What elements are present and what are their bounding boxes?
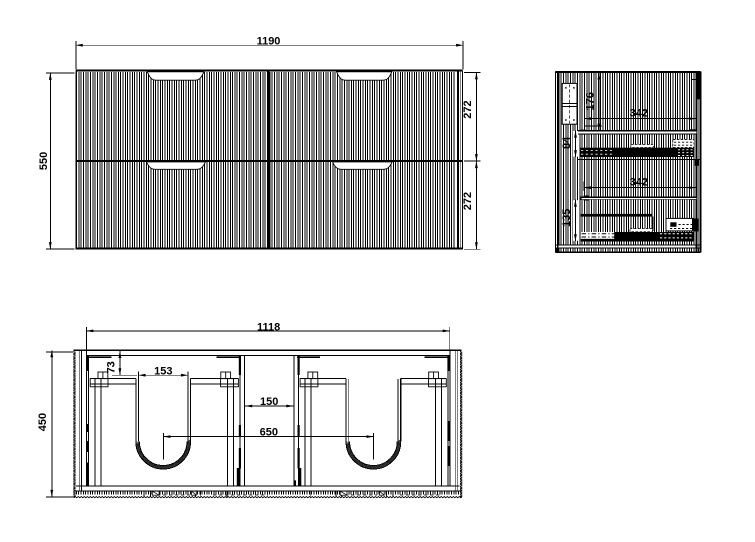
svg-text:650: 650: [260, 427, 278, 439]
svg-text:135: 135: [561, 209, 573, 227]
svg-text:550: 550: [38, 152, 50, 170]
svg-text:1118: 1118: [257, 321, 280, 333]
svg-text:150: 150: [260, 396, 278, 408]
svg-text:84: 84: [561, 136, 573, 149]
svg-text:342: 342: [630, 107, 648, 119]
svg-text:1190: 1190: [257, 35, 281, 47]
svg-text:450: 450: [37, 413, 49, 431]
svg-text:272: 272: [462, 192, 474, 210]
svg-text:176: 176: [585, 92, 597, 110]
svg-text:73: 73: [106, 361, 118, 373]
svg-text:342: 342: [630, 176, 648, 188]
svg-text:272: 272: [462, 100, 474, 118]
svg-text:153: 153: [154, 365, 172, 377]
